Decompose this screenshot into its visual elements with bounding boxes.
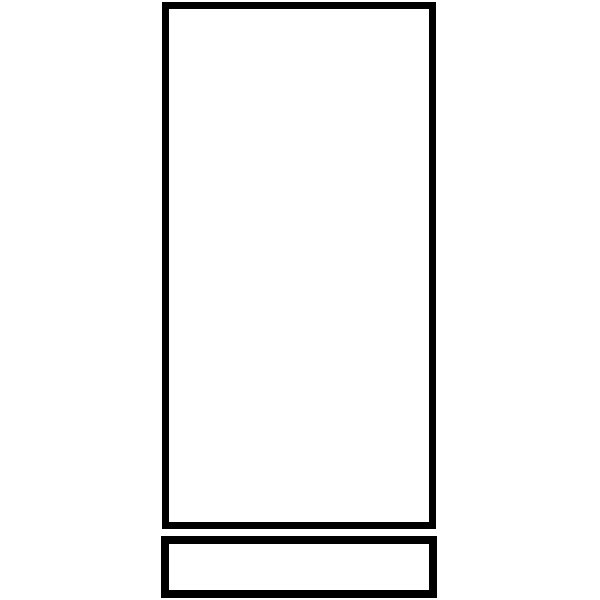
tall-rectangle-outline	[166, 6, 433, 526]
drawing-stage	[0, 0, 600, 600]
drawing-canvas	[0, 0, 600, 600]
bottom-bar-outline	[165, 540, 433, 594]
